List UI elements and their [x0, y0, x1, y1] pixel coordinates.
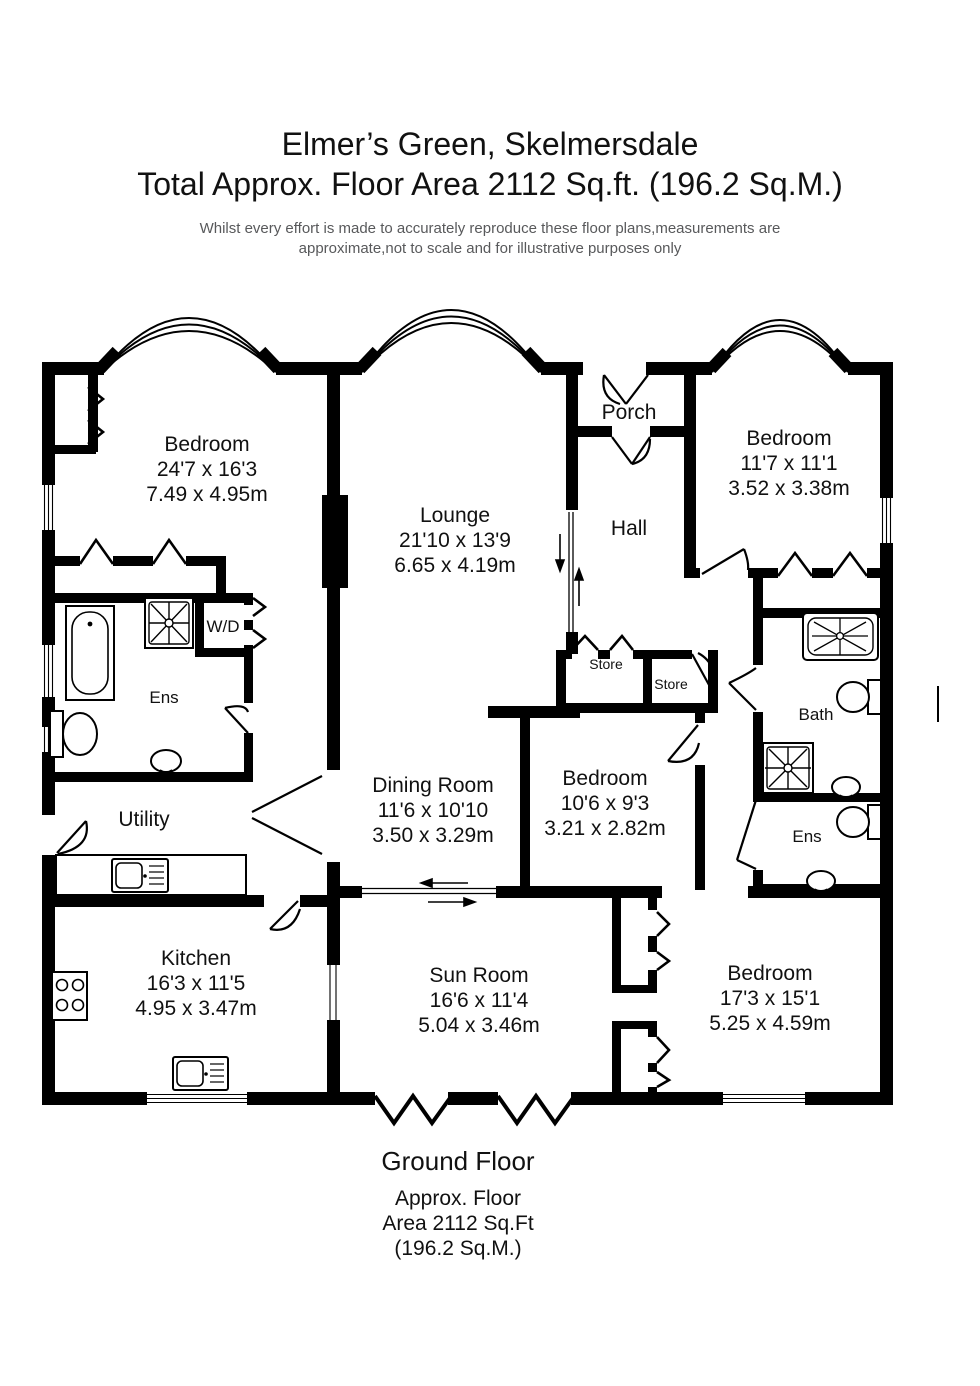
- bedroom4-label: Bedroom 17'3 x 15'1 5.25 x 4.59m: [709, 961, 830, 1036]
- bath-label: Bath: [799, 705, 834, 725]
- floor-area-summary: Approx. Floor Area 2112 Sq.Ft (196.2 Sq.…: [382, 1186, 533, 1261]
- utility-label: Utility: [118, 807, 169, 832]
- toilet-icon: [50, 711, 97, 757]
- toilet-icon: [837, 680, 881, 714]
- basin-icon: [832, 777, 860, 797]
- ens2-label: Ens: [792, 827, 821, 847]
- lounge-label: Lounge 21'10 x 13'9 6.65 x 4.19m: [394, 503, 515, 578]
- floor-name: Ground Floor: [381, 1146, 534, 1177]
- bay-window-icons: [100, 310, 849, 372]
- hall-label: Hall: [611, 516, 647, 541]
- basin-icon: [151, 750, 181, 772]
- hob-icon: [52, 972, 87, 1020]
- store2-label: Store: [654, 676, 687, 692]
- store1-label: Store: [589, 656, 622, 672]
- toilet-icon: [837, 805, 881, 839]
- shower-icon: [763, 743, 813, 793]
- shower-bath-icon: [803, 613, 878, 660]
- basin-icon: [807, 871, 835, 891]
- bedroom1-label: Bedroom 24'7 x 16'3 7.49 x 4.95m: [146, 432, 267, 507]
- bathtub-icon: [66, 606, 114, 700]
- floor-plan-drawing: [0, 0, 980, 1386]
- wd-label: W/D: [206, 617, 239, 637]
- kitchen-label: Kitchen 16'3 x 11'5 4.95 x 3.47m: [135, 946, 256, 1021]
- ens1-label: Ens: [149, 688, 178, 708]
- sun-room-label: Sun Room 16'6 x 11'4 5.04 x 3.46m: [418, 963, 539, 1038]
- dining-room-label: Dining Room 11'6 x 10'10 3.50 x 3.29m: [372, 773, 493, 848]
- porch-label: Porch: [602, 400, 657, 425]
- shower-icon: [145, 598, 193, 648]
- kitchen-sink-icon: [173, 1057, 228, 1090]
- bedroom2-label: Bedroom 11'7 x 11'1 3.52 x 3.38m: [728, 426, 849, 501]
- bedroom3-label: Bedroom 10'6 x 9'3 3.21 x 2.82m: [544, 766, 665, 841]
- utility-sink-icon: [112, 859, 168, 892]
- floorplan-page: Elmer’s Green, Skelmersdale Total Approx…: [0, 0, 980, 1386]
